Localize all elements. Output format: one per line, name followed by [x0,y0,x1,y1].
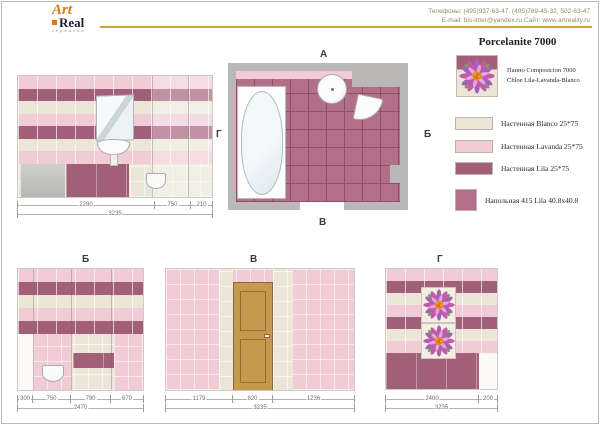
bathtub-bowl [241,91,283,195]
logo-subtitle: керамика [52,29,86,33]
panno-legend-item: Панно Composicion 7000 Chloe Lila-Lavand… [456,55,580,97]
elevation-v-total: 3235 [165,404,355,412]
panno-tile-upper [421,287,456,323]
logo-bullet-icon [52,20,57,25]
elevation-a-dims: 2280 750 210 [17,201,213,209]
legend-item-floor: Напольная 415 Lila 40.8x40.8 [455,189,578,211]
drain-dot [331,88,334,91]
plan-label-g: Г [216,129,222,140]
washbasin-plan [317,74,347,104]
elevation-b-tile-rows [18,269,143,334]
elevation-g-total: 3235 [385,404,498,412]
basin-pedestal [110,154,118,166]
corner-sink-elevation-b [42,365,64,382]
floor-plan [228,63,408,210]
white-notch [479,353,498,390]
legend-item-blanco: Настенная Blanco 25*75 [455,117,578,130]
elevation-a [17,75,213,198]
legend-label-blanco: Настенная Blanco 25*75 [501,119,578,128]
plan-label-b: Б [424,129,431,140]
legend-label-floor: Напольная 415 Lila 40.8x40.8 [485,196,578,205]
swatch-floor-lila [455,189,477,211]
email-site: E-mail: bis-inter@yandex.ru Сайт: www.ar… [428,17,590,26]
door [233,282,273,391]
flower-icon [423,325,455,357]
dark-accent-tile [73,353,114,368]
plan-niche [352,71,400,87]
cream-strip-left [219,269,233,391]
elevation-b-label: Б [82,254,89,265]
elevation-g-dims: 2400 200 [385,395,498,403]
plan-wall-step [390,165,400,183]
cream-strip-right [273,269,293,391]
elevation-b-total: 2470 [17,404,144,412]
bath-front-panel [66,164,129,198]
legend-item-lila: Настенная Lila 25*75 [455,162,569,175]
mirror [96,94,134,141]
pink-column-right [114,334,144,391]
panno-tile-lower [421,323,456,359]
flower-icon [459,58,495,94]
elevation-v-dims: 1179 820 1236 [165,395,355,403]
door-opening [300,202,344,210]
legend-label-lavanda: Настенная Lavanda 25*75 [501,142,583,151]
zone-divider [33,269,34,391]
door-panel-bottom [240,339,266,383]
zone-divider [111,269,112,391]
design-sheet: Art Real керамика Телефоны: (495)937-63-… [0,0,600,425]
swatch-lavanda [455,140,493,153]
pink-column [33,334,71,391]
panno-label-line1: Панно Composicion 7000 [507,66,580,76]
zone-divider [188,76,189,198]
panno-tile-image [456,55,498,97]
elevation-b [17,268,144,391]
plan-label-a: А [320,49,327,60]
elevation-b-dims: 300 750 790 670 [17,395,144,403]
corner-sink-elevation [146,173,166,189]
elevation-v-label: В [250,254,257,265]
phone-numbers: Телефоны: (495)937-63-47, (495)789-45-32… [428,8,590,17]
header-divider [100,26,592,28]
elevation-v [165,268,355,391]
elevation-g-label: Г [437,254,443,265]
contact-info: Телефоны: (495)937-63-47, (495)789-45-32… [428,8,590,26]
plan-label-v: В [319,217,326,228]
legend-label-lila: Настенная Lila 25*75 [501,164,569,173]
swatch-blanco [455,117,493,130]
swatch-lila [455,162,493,175]
elevation-g [385,268,498,390]
panno-label: Панно Composicion 7000 Chloe Lila-Lavand… [507,66,580,86]
zone-divider [71,269,72,391]
elevation-a-total: 3235 [17,210,213,218]
collection-title: Porcelanite 7000 [440,36,595,48]
legend-item-lavanda: Настенная Lavanda 25*75 [455,140,583,153]
flower-icon [423,289,455,321]
door-handle [264,334,270,338]
door-panel-top [240,291,266,331]
panno-label-line2: Chloe Lila-Lavanda-Blanco [507,76,580,86]
bathtub-plan [237,86,286,199]
bath-screen-panel [21,164,65,198]
door-side-strip [18,334,33,391]
company-logo: Art Real керамика [52,2,86,33]
